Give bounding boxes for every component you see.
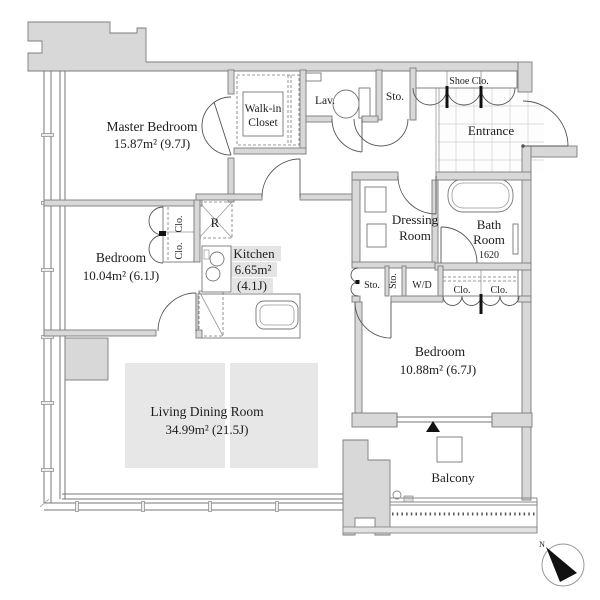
bedroom-right-window bbox=[397, 413, 492, 427]
wall-master-bedroom-bottom bbox=[44, 200, 202, 206]
entrance-jamb-wall bbox=[518, 62, 532, 92]
label-refrigerator: R bbox=[211, 215, 220, 230]
bath-door bbox=[441, 227, 477, 263]
label-closet-left-b: Clo. bbox=[174, 243, 185, 260]
balcony-faucet bbox=[404, 496, 413, 502]
floor-plan-page: N Master Bedroom 15.87m² (9.7J) Walk-in … bbox=[0, 0, 600, 600]
bedroom-left-door bbox=[158, 293, 196, 331]
label-lavatory: Lav. bbox=[315, 95, 335, 107]
outer-wall-top bbox=[28, 22, 518, 71]
hatch-triangle-marker bbox=[426, 421, 440, 432]
outer-wall-right bbox=[522, 146, 531, 500]
label-bath-room-1: Bath bbox=[477, 217, 502, 232]
dressing-room-door bbox=[398, 176, 436, 214]
label-master-bedroom: Master Bedroom bbox=[106, 119, 198, 134]
compass-needle-icon bbox=[546, 547, 577, 582]
facade-mullion-tick bbox=[42, 402, 54, 405]
vanity-units bbox=[365, 187, 386, 247]
facade-mullion-tick bbox=[276, 502, 279, 512]
label-washer-dryer: W/D bbox=[412, 280, 431, 291]
label-bedroom-right-area: 10.88m² (6.7J) bbox=[400, 362, 476, 377]
bath-counter bbox=[513, 224, 518, 254]
label-storage-tall: Sto. bbox=[388, 273, 399, 289]
label-storage-top: Sto. bbox=[386, 91, 404, 103]
pillar-bottom bbox=[343, 440, 390, 535]
facade-mullion-tick bbox=[42, 469, 54, 472]
label-kitchen: Kitchen bbox=[233, 246, 275, 261]
label-closet-right-b: Clo. bbox=[491, 285, 508, 296]
label-bath-room-2: Room bbox=[473, 232, 505, 247]
stove bbox=[202, 246, 231, 292]
compass-north-label: N bbox=[539, 540, 545, 549]
label-closet-right-a: Clo. bbox=[454, 285, 471, 296]
label-kitchen-jo: (4.1J) bbox=[237, 278, 267, 293]
label-bedroom-right: Bedroom bbox=[415, 344, 466, 359]
label-dressing-room-1: Dressing bbox=[392, 212, 439, 227]
label-bath-size: 1620 bbox=[479, 250, 499, 261]
storage-small-folding-door bbox=[351, 268, 360, 296]
label-dressing-room-2: Room bbox=[399, 228, 431, 243]
facade-mullion-tick bbox=[76, 502, 79, 512]
floor-plan-drawing: N Master Bedroom 15.87m² (9.7J) Walk-in … bbox=[0, 0, 600, 600]
label-bedroom-left-area: 10.04m² (6.1J) bbox=[83, 268, 159, 283]
label-walk-in-closet-2: Closet bbox=[248, 117, 278, 129]
hall-kitchen-door bbox=[262, 159, 300, 197]
label-bedroom-left: Bedroom bbox=[96, 250, 147, 265]
pillar-left bbox=[65, 338, 108, 380]
label-living-dining-area: 34.99m² (21.5J) bbox=[166, 422, 249, 437]
master-bedroom-door bbox=[202, 97, 231, 155]
label-closet-left-a: Clo. bbox=[174, 216, 185, 233]
escape-hatch bbox=[437, 437, 462, 462]
label-living-dining: Living Dining Room bbox=[150, 404, 264, 419]
lavatory-shelf bbox=[306, 73, 321, 81]
facade-mullion-tick bbox=[42, 134, 54, 137]
facade-mullion-tick bbox=[142, 502, 145, 512]
wall-bedroom-left-bottom bbox=[44, 330, 156, 336]
label-entrance: Entrance bbox=[468, 123, 514, 138]
label-walk-in-closet-1: Walk-in bbox=[245, 103, 282, 115]
closet-right-folding-door bbox=[443, 294, 519, 314]
facade-mullion-tick bbox=[209, 502, 212, 512]
label-shoe-closet: Shoe Clo. bbox=[449, 76, 488, 87]
label-storage-small: Sto. bbox=[364, 280, 380, 291]
compass: N bbox=[539, 540, 584, 586]
facade-mullion-tick bbox=[42, 269, 54, 272]
label-balcony: Balcony bbox=[431, 470, 475, 485]
lavatory-door bbox=[332, 119, 362, 152]
label-kitchen-area: 6.65m² bbox=[235, 262, 272, 277]
label-master-bedroom-area: 15.87m² (9.7J) bbox=[114, 136, 190, 151]
